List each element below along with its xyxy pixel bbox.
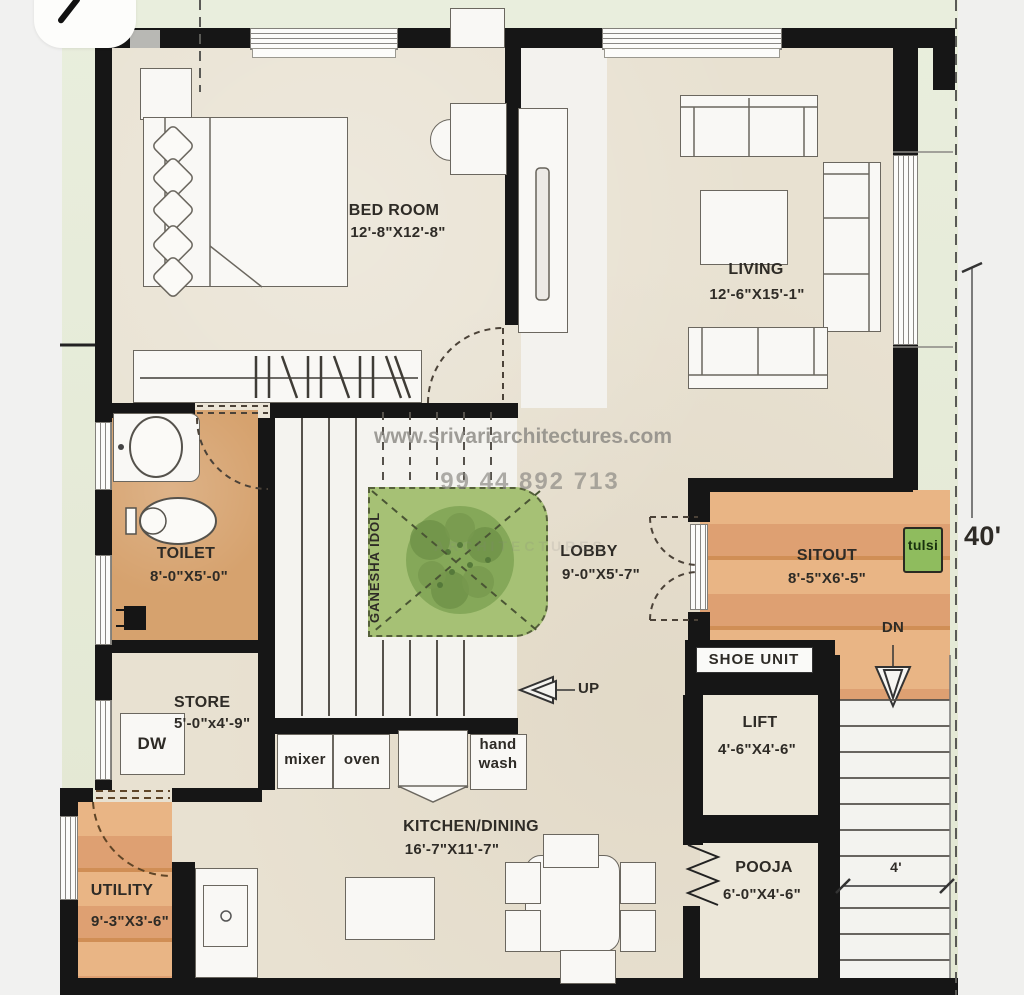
mixer-label: mixer [284, 752, 326, 769]
hand-wash-label: hand wash [479, 736, 518, 774]
shoe-unit-label: SHOE UNIT [709, 652, 800, 669]
toilet-wc [140, 498, 216, 544]
pillows [152, 125, 194, 298]
stair-width-dim [836, 879, 954, 893]
dw-label: DW [138, 735, 167, 754]
plot-depth-dim: 40' [964, 522, 1001, 552]
toilet-name: TOILET [157, 545, 215, 563]
kitchen-name: KITCHEN/DINING [403, 818, 539, 836]
utility-size: 9'-3"X3'-6" [91, 914, 169, 931]
plan-linework [0, 0, 1024, 995]
stair-width-dim-label: 4' [890, 860, 902, 875]
store-size: 5'-0"x4'-9" [174, 716, 250, 733]
store-name: STORE [174, 694, 230, 712]
main-door-arc-bottom [650, 572, 698, 620]
dn-label: DN [882, 620, 904, 637]
watermark-ghost: ARCHITECTURES [434, 538, 606, 554]
sofa-lines [680, 98, 869, 375]
viewer-overlay-control[interactable] [34, 0, 136, 48]
floor-trap [124, 606, 146, 630]
utility-name: UTILITY [91, 882, 154, 900]
tv [536, 168, 549, 300]
toilet-basin [130, 417, 182, 477]
sitout-name: SITOUT [797, 547, 857, 565]
dn-arrow [876, 645, 910, 706]
pooja-size: 6'-0"X4'-6" [723, 887, 801, 904]
sitout-size: 8'-5"X6'-5" [788, 571, 866, 588]
main-door-arc-top [650, 517, 698, 565]
living-name: LIVING [728, 261, 783, 279]
bedroom-size: 12'-8"X12'-8" [350, 225, 445, 242]
lobby-size: 9'-0"X5'-7" [562, 567, 640, 584]
toilet-door-arc [197, 418, 268, 489]
toilet-size: 8'-0"X5'-0" [150, 569, 228, 586]
lift-size: 4'-6"X4'-6" [718, 742, 796, 759]
up-label: UP [578, 681, 599, 698]
oven-label: oven [344, 752, 380, 769]
lift-name: LIFT [743, 714, 778, 732]
bedroom-door-arc [428, 328, 503, 403]
watermark-phone: 99 44 892 713 [440, 468, 619, 496]
watermark-url: www.srivariarchitectures.com [374, 425, 672, 449]
wardrobe-hangers [140, 356, 418, 398]
up-arrow [520, 677, 575, 703]
bedroom-name: BED ROOM [349, 202, 439, 220]
blanket-fold [210, 246, 262, 287]
pooja-name: POOJA [735, 859, 793, 877]
tulsi-label: tulsi [908, 538, 938, 553]
kitchen-size: 16'-7"X11'-7" [405, 842, 499, 859]
utility-door-arc [93, 802, 172, 876]
floor-plan-page: BED ROOM 12'-8"X12'-8" LIVING 12'-6"X15'… [0, 0, 1024, 995]
ganesha-idol-label: GANESHA IDOL [368, 497, 394, 637]
living-size: 12'-6"X15'-1" [709, 287, 804, 304]
landing-tree [406, 506, 514, 614]
pooja-accordion-door [688, 845, 718, 905]
